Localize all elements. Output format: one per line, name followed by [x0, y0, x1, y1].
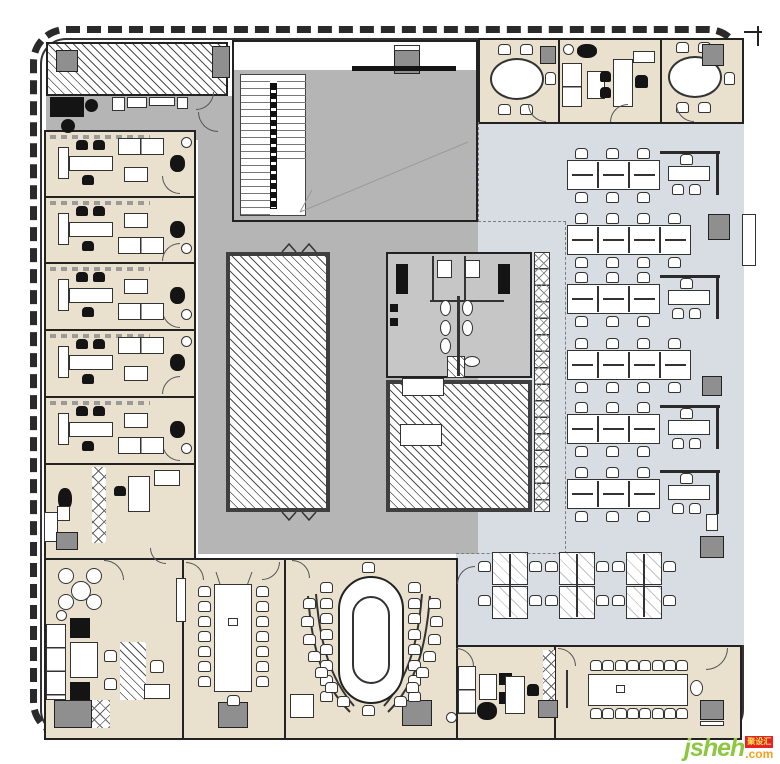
pod-divider	[576, 554, 578, 617]
coffee-table	[124, 213, 148, 228]
column	[700, 536, 724, 558]
chair	[680, 473, 693, 484]
chair	[637, 338, 650, 349]
sofa	[118, 303, 164, 320]
sink-counter	[498, 264, 510, 294]
wc-cabinet	[56, 532, 78, 550]
desk-divider	[628, 416, 630, 442]
chair	[150, 660, 164, 673]
chair	[668, 257, 681, 268]
fan-icon	[181, 336, 192, 347]
grid-tick	[744, 26, 762, 46]
armchair	[477, 702, 497, 720]
desk-line	[603, 239, 624, 241]
fan-icon	[446, 712, 457, 723]
manager-desk	[668, 290, 710, 305]
chair	[575, 467, 588, 478]
terrace-block	[212, 46, 230, 78]
sink-counter	[396, 264, 408, 294]
chair	[256, 661, 269, 672]
desk-return	[58, 413, 69, 445]
sofa	[458, 666, 476, 714]
toilet	[440, 300, 451, 316]
chair	[575, 446, 588, 457]
chair	[408, 613, 421, 624]
chair	[575, 148, 588, 159]
chair	[672, 184, 684, 195]
chair	[596, 595, 609, 606]
cabinet-white	[290, 694, 314, 718]
office-desk	[69, 355, 113, 370]
stall-wall	[432, 256, 434, 302]
chair	[408, 598, 421, 609]
chair	[545, 561, 558, 572]
chair	[408, 582, 421, 593]
cabinet	[540, 46, 556, 64]
chair	[408, 644, 421, 655]
desk-line	[634, 493, 655, 495]
manager-partition	[660, 275, 720, 278]
chair	[627, 660, 639, 671]
chair	[256, 676, 269, 687]
sofa	[46, 624, 66, 700]
watermark-logo: jsheh 聚设汇 .com	[684, 736, 773, 761]
bookshelf	[543, 650, 555, 700]
chair	[256, 586, 269, 597]
desk-divider	[597, 481, 599, 507]
desk-divider	[628, 286, 630, 312]
clock-icon	[563, 44, 574, 55]
lobby-counter	[352, 66, 456, 71]
chair	[416, 667, 429, 678]
convector-strip	[50, 267, 150, 271]
office-desk	[69, 288, 113, 303]
chair	[612, 561, 625, 572]
chair	[198, 586, 211, 597]
chair	[423, 651, 436, 662]
desk-divider	[628, 481, 630, 507]
fan-icon	[181, 243, 192, 254]
chair	[529, 595, 542, 606]
chair	[698, 102, 711, 113]
chair	[689, 503, 701, 514]
chair	[639, 708, 651, 719]
toilet-stall	[437, 260, 452, 278]
chair	[637, 316, 650, 327]
desk-divider	[597, 227, 599, 253]
elevator-door-marks	[282, 244, 316, 520]
column	[702, 376, 722, 396]
chair	[637, 257, 650, 268]
manager-partition	[716, 405, 719, 449]
armchair	[577, 44, 597, 58]
guest-chair	[76, 339, 88, 349]
chair	[575, 511, 588, 522]
guest-chair	[76, 406, 88, 416]
sofa	[118, 138, 164, 155]
chair	[637, 446, 650, 457]
chair	[652, 660, 664, 671]
chair	[428, 634, 441, 645]
chair	[602, 660, 614, 671]
chair	[256, 601, 269, 612]
chair	[615, 708, 627, 719]
chair	[637, 467, 650, 478]
chair	[606, 213, 619, 224]
manager-partition	[660, 405, 720, 408]
pod-divider	[509, 554, 511, 617]
manager-partition	[716, 151, 719, 195]
manager-desk	[668, 420, 710, 435]
chair	[428, 598, 441, 609]
watermark-column: 聚设汇 .com	[745, 736, 773, 760]
chair	[575, 382, 588, 393]
coffee-table	[479, 674, 497, 700]
office-desk	[69, 422, 113, 437]
cabinet	[702, 44, 724, 66]
guest-chair	[76, 206, 88, 216]
desk-divider	[659, 352, 661, 378]
chair	[575, 192, 588, 203]
chair	[596, 561, 609, 572]
chair	[637, 192, 650, 203]
chair	[406, 682, 419, 693]
shaft-strip	[92, 467, 106, 543]
desk-return	[144, 684, 170, 699]
chair	[590, 708, 602, 719]
chair	[320, 644, 333, 655]
projector	[228, 618, 238, 626]
chair	[672, 438, 684, 449]
door-niche	[742, 214, 756, 266]
armchair	[170, 221, 185, 238]
desk-divider	[628, 227, 630, 253]
desk-return	[58, 279, 69, 311]
chair	[663, 561, 676, 572]
chair	[606, 316, 619, 327]
chair	[606, 148, 619, 159]
pantry-counter	[50, 97, 84, 117]
chair	[680, 154, 693, 165]
sofa	[562, 63, 582, 107]
armchair	[70, 682, 90, 702]
pod-divider	[643, 554, 645, 617]
desk-line	[603, 174, 624, 176]
chair	[575, 272, 588, 283]
chair	[615, 660, 627, 671]
pantry-table	[61, 119, 75, 133]
toilet	[464, 356, 480, 367]
chair	[198, 616, 211, 627]
chair	[303, 634, 316, 645]
chair	[606, 272, 619, 283]
chair	[575, 213, 588, 224]
chair	[602, 708, 614, 719]
chair	[104, 678, 117, 690]
desk-line	[634, 298, 655, 300]
chair	[325, 682, 338, 693]
chair	[689, 184, 701, 195]
guest-chair	[93, 339, 105, 349]
chair	[320, 629, 333, 640]
chair	[478, 561, 491, 572]
desk-chair	[82, 374, 94, 384]
chair	[663, 595, 676, 606]
desk-divider	[597, 286, 599, 312]
office-desk	[69, 222, 113, 237]
podium-top	[394, 45, 420, 51]
exec-desk	[613, 59, 633, 107]
chair	[114, 486, 126, 496]
chair	[606, 382, 619, 393]
chair	[590, 660, 602, 671]
cabinet	[54, 700, 92, 728]
appliance	[177, 97, 188, 109]
desk-line	[572, 428, 593, 430]
desk-line	[665, 364, 686, 366]
guest-chair	[93, 406, 105, 416]
chair	[680, 408, 693, 419]
reception-desk	[120, 642, 146, 700]
desk-line	[572, 364, 593, 366]
cabinet-x	[92, 700, 110, 728]
sink	[390, 304, 398, 312]
chair	[198, 676, 211, 687]
chair	[408, 629, 421, 640]
chair	[606, 257, 619, 268]
chair	[394, 696, 407, 707]
chair	[301, 616, 314, 627]
desk-chair	[82, 175, 94, 185]
chair	[362, 705, 375, 716]
shaft-notch	[402, 378, 444, 396]
chair	[627, 708, 639, 719]
chair	[337, 696, 350, 707]
convector-strip	[50, 401, 150, 405]
desk-line	[572, 298, 593, 300]
chair	[606, 338, 619, 349]
chair	[689, 438, 701, 449]
chair	[676, 42, 689, 53]
oval-table-inner	[352, 596, 390, 684]
fan-icon	[181, 443, 192, 454]
chair	[606, 192, 619, 203]
desk-line	[665, 239, 686, 241]
meeting-table	[490, 58, 544, 100]
chair	[498, 44, 511, 55]
chair	[637, 402, 650, 413]
chair	[198, 631, 211, 642]
desk	[505, 676, 525, 714]
chair	[198, 661, 211, 672]
chair	[256, 631, 269, 642]
desk-line	[603, 493, 624, 495]
appliance	[112, 97, 125, 111]
chair	[652, 708, 664, 719]
sink	[390, 318, 398, 326]
chair	[637, 382, 650, 393]
chair	[256, 646, 269, 657]
chair	[689, 308, 701, 319]
desk-chair	[635, 75, 648, 88]
chair	[637, 511, 650, 522]
chair	[320, 598, 333, 609]
chair	[676, 660, 688, 671]
chair	[612, 595, 625, 606]
chair	[606, 467, 619, 478]
chair	[672, 503, 684, 514]
desk-line	[634, 239, 655, 241]
floor-plan-canvas: jsheh 聚设汇 .com	[0, 0, 780, 764]
toilet	[462, 300, 473, 316]
chair	[672, 308, 684, 319]
desk-side	[633, 51, 655, 63]
desk-divider	[628, 162, 630, 188]
fan-icon	[56, 610, 67, 621]
chair	[303, 598, 316, 609]
conference-table	[588, 674, 688, 706]
chair	[320, 613, 333, 624]
round-table	[71, 581, 91, 601]
round-chair	[58, 568, 74, 584]
desk-chair	[82, 241, 94, 251]
chair	[545, 595, 558, 606]
armchair	[170, 287, 185, 304]
guest-chair	[600, 87, 611, 98]
desk-chair	[82, 307, 94, 317]
chair	[668, 382, 681, 393]
guest-chair	[93, 272, 105, 282]
conference-table	[214, 584, 252, 692]
chair	[637, 272, 650, 283]
chair	[104, 650, 117, 662]
stall-wall	[457, 296, 460, 376]
cabinet	[700, 700, 724, 720]
desk-line	[572, 493, 593, 495]
desk-return	[58, 213, 69, 245]
chair	[637, 213, 650, 224]
sofa	[118, 337, 164, 354]
desk-divider	[659, 227, 661, 253]
chair	[498, 104, 511, 115]
armchair	[170, 155, 185, 172]
side-table	[154, 470, 180, 486]
coffee-table	[124, 167, 148, 182]
desk-line	[603, 428, 624, 430]
wc-box	[57, 506, 70, 521]
desk-line	[572, 239, 593, 241]
chair	[606, 511, 619, 522]
chair	[724, 72, 735, 85]
column	[708, 214, 730, 240]
chair	[664, 708, 676, 719]
projector	[616, 685, 625, 693]
desk-line	[634, 174, 655, 176]
desk-line	[634, 364, 655, 366]
water-dispenser	[706, 514, 718, 531]
coffee-table	[124, 279, 148, 294]
chair	[315, 667, 328, 678]
sofa	[118, 437, 164, 454]
glass-door	[176, 578, 186, 622]
chair	[606, 402, 619, 413]
manager-partition	[660, 470, 720, 473]
leader-line	[300, 142, 468, 212]
desk-return	[58, 147, 69, 179]
round-chair	[86, 568, 102, 584]
chair	[256, 616, 269, 627]
chair	[606, 446, 619, 457]
chair	[227, 695, 240, 706]
desk-line	[603, 298, 624, 300]
chair	[430, 616, 443, 627]
chair	[520, 44, 533, 55]
pantry-sink	[85, 99, 98, 112]
watermark-brand: jsheh	[684, 736, 744, 761]
chair	[529, 561, 542, 572]
end-chair	[690, 680, 703, 696]
manager-desk	[668, 166, 710, 181]
armchair	[70, 618, 90, 638]
cabinet-base	[700, 721, 724, 726]
appliance	[149, 97, 175, 106]
chair	[637, 148, 650, 159]
toilet	[440, 338, 451, 354]
desk-return	[58, 346, 69, 378]
desk	[128, 476, 150, 512]
desk-line	[634, 428, 655, 430]
desk-divider	[597, 352, 599, 378]
guest-chair	[93, 206, 105, 216]
desk-line	[603, 364, 624, 366]
guest-chair	[76, 140, 88, 150]
toilet	[462, 320, 473, 336]
chair	[362, 562, 375, 573]
chair	[478, 595, 491, 606]
desk-divider	[597, 162, 599, 188]
office-desk	[69, 156, 113, 171]
terrace-block	[56, 50, 78, 72]
desk-chair	[82, 441, 94, 451]
chair	[680, 278, 693, 289]
watermark-suffix: .com	[745, 748, 773, 760]
chair	[676, 708, 688, 719]
desk-divider	[628, 352, 630, 378]
chair	[545, 72, 556, 85]
guest-chair	[93, 140, 105, 150]
coffee-table	[124, 413, 148, 428]
coffee-table	[70, 642, 98, 678]
manager-desk	[668, 485, 710, 500]
fan-icon	[181, 309, 192, 320]
chair	[575, 338, 588, 349]
toilet	[440, 320, 451, 336]
fan-icon	[181, 137, 192, 148]
chair	[527, 684, 539, 696]
desk-line	[572, 174, 593, 176]
toilet-stall	[465, 260, 480, 278]
guest-chair	[76, 272, 88, 282]
chair	[575, 316, 588, 327]
chair	[575, 257, 588, 268]
chair	[639, 660, 651, 671]
armchair	[170, 354, 185, 371]
chair	[308, 651, 321, 662]
chair	[198, 601, 211, 612]
screen	[566, 670, 568, 708]
cabinet	[538, 700, 558, 718]
chair	[668, 338, 681, 349]
